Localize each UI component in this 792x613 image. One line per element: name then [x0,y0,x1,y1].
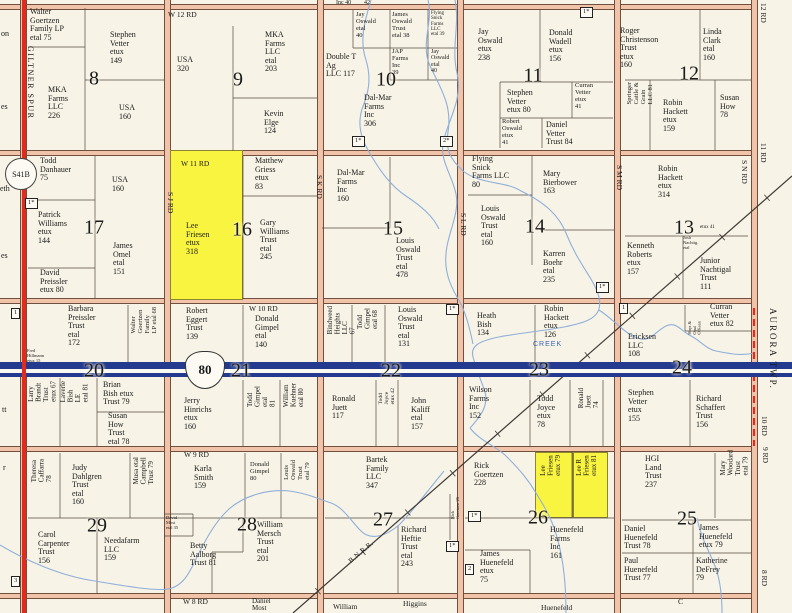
parcel-label: Matthew Griess etux 83 [255,157,283,191]
road-label: W 9 RD [184,450,209,459]
parcel-label: Kevin Elge 124 [264,110,284,136]
section-number: 8 [89,68,99,91]
parcel-label: Walter Goertzen Family LP etal 68 [131,307,159,333]
parcel-label: Louis Oswald Trust etal 478 [396,237,420,280]
parcel-label: John Kaliff etal 157 [411,397,430,431]
road-label: S L RD [459,213,468,236]
road-label: W 12 RD [168,10,197,19]
footnote-marker: 3 [11,576,20,587]
clipped-label: Inc 40 [336,0,351,6]
parcel-label: Stephen Vetter etux 155 [628,389,654,423]
parcel-label: Heath Bish 134 [477,312,496,338]
section-number: 14 [525,216,545,239]
parcel-label: Double T Ag LLC 117 [326,53,356,79]
parcel-label: MKA Farms LLC etal 203 [265,31,285,74]
highway-shield-s41b: S41B [5,158,37,190]
parcel-label: Richard Schaffert Trust 156 [696,395,725,429]
clipped-label: C [678,598,683,606]
parcel-label: David Most etal 35 [166,516,178,530]
road-label: W 8 RD [183,597,208,606]
parcel-label: James Huenefeld etux 79 [699,524,732,550]
clipped-label: r [3,464,6,472]
section-number: 9 [233,69,243,92]
section-number: 12 [679,63,699,86]
parcel-label: USA 160 [119,104,135,121]
parcel-label: Donald Wadell etux 156 [549,29,573,63]
parcel-label: etux 41 [700,225,715,230]
clipped-label: es [1,252,8,260]
section-number: 17 [84,217,104,240]
road-label: S J RD [166,192,175,213]
clipped-label: Daniel Most [252,598,271,613]
parcel-label: Jay Oswald etal 40 [356,12,376,40]
parcel-label: Betty Aalborg Trust 81 [190,542,217,568]
parcel-label: James Huenefeld etux 75 [480,550,513,584]
highlighted-parcel-label: Lee Friesen etux 318 [186,222,210,256]
parcel-label: Ronald Juett 74 [578,388,600,408]
edge-road-label: 9 RD [761,447,770,463]
parcel-label: William Kuehner etal 80 [283,383,305,407]
parcel-label: Ronald Juett 117 [332,395,355,421]
plat-map: S41B 80 CREEK B.N.R.R. AURORA TWP. GILTN… [0,0,792,613]
parcel-label: James Oswald Trust etal 38 [392,12,412,40]
parcel-label: Stephen Vetter etux 149 [110,31,136,65]
parcel-label: JAP Farms Inc 39 [392,49,408,77]
parcel-label: Wilson Farms Inc 152 [469,386,492,420]
footnote-marker: 1* [580,7,593,18]
parcel-label: Roger Christenson Trust etux 160 [620,27,658,70]
parcel-label: Jay Oswald etux 238 [478,28,502,62]
parcel-label: USA 320 [177,56,193,73]
parcel-label: Gary Williams Trust etal 245 [260,219,289,262]
map-lines-layer [0,0,792,613]
section-number: 27 [373,509,393,532]
parcel-label: Donald Gimpel etal 140 [255,315,279,349]
road-label: W 10 RD [249,304,278,313]
parcel-label: Junior Nachtigal Trust 111 [700,257,731,291]
section-number: 24 [672,357,692,380]
section-number: 29 [87,515,107,538]
parcel-label: Fred Hillmann etux 15 [27,349,44,363]
parcel-label: MKA Farms LLC 226 [48,86,68,120]
parcel-label: Mary Bierbower 163 [543,170,577,196]
section-number: 22 [381,360,401,383]
section-number: 11 [523,65,542,88]
highlighted-parcel-label: Lee Friesen etux 79 [540,455,562,476]
parcel-label: Rick Goertzen 228 [474,462,503,488]
clipped-label: Huenefeld [541,604,572,612]
highlighted-parcel-label: Lee R Friesen etux 81 [576,455,598,476]
parcel-label: Robin Hackett etux 314 [658,165,683,199]
parcel-label: Judy Dahlgren Trust etal 160 [72,464,102,507]
footnote-marker: 2* [440,136,453,147]
footnote-marker: 1* [352,136,365,147]
parcel-label: Karren Boehr etal 235 [543,250,565,284]
parcel-label: Jerry Hinrichs etux 160 [184,397,212,431]
road-label: S N RD [740,160,749,184]
parcel-label: Curran Vetter etux 82 [710,303,734,329]
parcel-label: Robin Hackett etux 126 [544,305,569,339]
parcel-label: Susan How 78 [720,94,739,120]
parcel-label: Rick Goertzen 25 [451,497,461,519]
section-number: 20 [84,360,104,383]
clipped-label: eth [0,185,10,193]
parcel-label: Susan How Trust etal 78 [108,412,130,446]
parcel-label: Needafarm LLC 159 [104,537,140,563]
section-number: 21 [231,360,251,383]
clipped-label: tt [2,406,6,414]
parcel-label: Richard Heftie Trust etal 243 [401,526,426,569]
parcel-label: Todd Gimpel etal 81 [247,386,277,407]
parcel-label: Daniel Huenefeld Trust 78 [624,525,657,551]
parcel-label: Todd Joyce etux 42 [379,388,397,404]
parcel-label: Dal-Mar Farms Inc 160 [337,169,365,203]
parcel-label: Brian Bish etux Trust 79 [103,381,133,407]
section-number: 16 [232,219,252,242]
parcel-label: Louis Oswald Trust etal 160 [481,205,505,248]
parcel-label: Todd Gimpel etal 68 [357,308,379,329]
parcel-label: Carol Carpenter Trust 156 [38,531,70,565]
clipped-label: es [1,103,8,111]
parcel-label: Ericksen LLC 108 [628,333,656,359]
parcel-label: Robin Hackett etux 159 [663,99,688,133]
parcel-label: Curran Vetter etux 41 [575,83,593,111]
parcel-label: David Preissler etux 80 [40,269,68,295]
parcel-label: Stephen Vetter etux 80 [507,89,533,115]
parcel-label: Kenneth Roberts etux 157 [627,242,654,276]
parcel-label: Robert Eggert Trust 139 [186,307,208,341]
footnote-marker: 1 [11,308,20,319]
parcel-label: Todd Joyce etux 78 [537,395,555,429]
parcel-label: Daniel Vetter Trust 84 [546,121,573,147]
parcel-label: Musa etal Campbell Trust 79 [133,457,155,484]
parcel-label: Flying Snick Farms LLC etal 39 [431,11,444,38]
i80-label: 80 [199,362,212,378]
parcel-label: HGI Land Trust 237 [645,455,662,489]
parcel-label: James Omel etal 151 [113,242,133,276]
edge-road-label: 8 RD [760,570,769,586]
parcel-label: William Mersch Trust etal 201 [257,521,283,564]
parcel-label: Jay Oswald etal 40 [431,49,449,75]
parcel-label: Louis Oswald Trust etal 131 [398,306,422,349]
parcel-label: Walter Goertzen Family LP etal 75 [30,8,64,42]
footnote-marker: 1* [446,541,459,552]
parcel-label: Laverle Bish LE etal 81 [60,381,90,402]
parcel-label: Louis Oswald Trust etal 79 [284,460,312,480]
section-number: 25 [677,508,697,531]
parcel-label: Josh Nachtig. etal [683,236,698,250]
road-label: S K RD [315,175,324,199]
parcel-label: USA 160 [112,176,128,193]
s41b-label: S41B [12,170,30,179]
clipped-label: on [1,30,9,38]
footnote-marker: 1* [25,198,38,209]
parcel-label: Bartek Family LLC 347 [366,456,389,490]
parcel-label: Katherine DeFrey 79 [696,557,728,583]
parcel-label: Huenefeld Farms Inc 161 [550,526,583,560]
parcel-label: Barbara Preissler Trust etal 172 [68,305,96,348]
parcel-label: Bindweed Heights LLC 67 [327,306,357,334]
giltner-spur-label: GILTNER SPUR [26,46,35,120]
clipped-label: 42 [364,0,370,6]
parcel-label: Springer Cattle & Grain LLC 81 [627,82,655,104]
parcel-label: Karla Smith 159 [194,465,213,491]
parcel-label: Flying Snick Farms LLC 80 [472,155,509,189]
road-label: S M RD [615,165,624,190]
edge-road-label: 12 RD [759,3,768,23]
parcel-label: Mary Woodard Trust etal 79 [720,450,750,475]
road-label: W 11 RD [181,159,209,168]
edge-road-label: 10 RD [760,416,769,436]
section-number: 28 [237,514,257,537]
footnote-marker: 1* [468,511,481,522]
parcel-label: Hoyt & Opal O'Kean [688,321,702,335]
section-number: 23 [529,359,549,382]
footnote-marker: 1* [446,304,459,315]
parcel-label: Larry Brandt Trust etux 67 [28,381,58,402]
parcel-label: Theresa Caffarra 78 [31,459,53,482]
parcel-label: Dal-Mar Farms Inc 306 [364,94,392,128]
parcel-label: Patrick Williams etux 144 [38,211,67,245]
clipped-label: Higgins [403,600,427,608]
parcel-label: Linda Clark etal 160 [703,28,722,62]
footnote-marker: 1* [596,282,609,293]
footnote-marker: 2 [465,564,474,575]
parcel-label: Todd Danhauer 75 [40,157,71,183]
township-label-aurora: AURORA TWP. [768,308,778,390]
clipped-label: William [333,603,357,611]
section-number: 26 [528,507,548,530]
parcel-label: Paul Huenefeld Trust 77 [624,557,657,583]
creek-label: CREEK [533,341,562,348]
parcel-label: Robert Oswald etux 41 [502,119,522,147]
footnote-marker: 1 [619,303,628,314]
parcel-label: Donald Gimpel 80 [250,462,270,483]
edge-road-label: 11 RD [759,143,768,163]
